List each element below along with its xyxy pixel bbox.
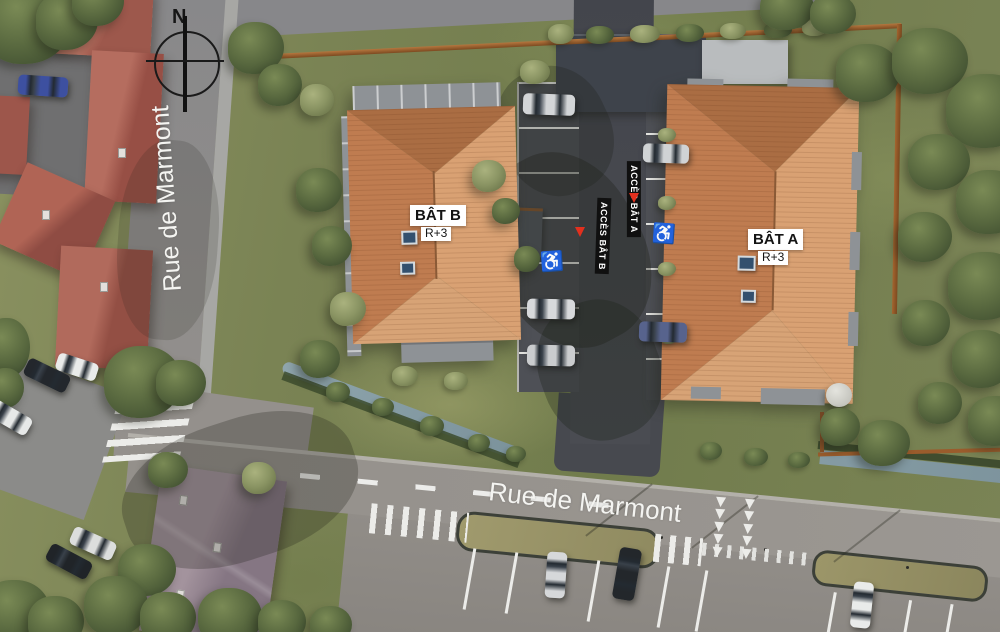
garden-shrub (392, 366, 418, 386)
tree (300, 340, 340, 378)
stream-shrub (788, 452, 810, 468)
lamp-post (906, 566, 909, 569)
tree (948, 252, 1000, 320)
pergola-dome (826, 383, 852, 407)
car (527, 299, 575, 320)
building-a-east-balcony (848, 312, 859, 346)
tree (918, 382, 962, 424)
car (639, 321, 688, 343)
tree (952, 330, 1000, 388)
compass-circle-icon (154, 31, 220, 97)
existing-house (0, 95, 30, 175)
roof-window (741, 290, 756, 303)
garden-shrub (520, 60, 550, 84)
roof-window (400, 262, 415, 275)
compass: N (140, 4, 240, 124)
building-a-east-balcony (849, 232, 860, 270)
tree (820, 408, 860, 446)
shelter-roof (702, 40, 788, 84)
tree (898, 212, 952, 262)
crosswalk-right (653, 534, 704, 567)
building-b-floors: R+3 (421, 227, 451, 241)
compass-needle-icon (183, 16, 187, 112)
car (527, 345, 575, 367)
tree (956, 170, 1000, 234)
handicap-icon: ♿ (651, 221, 676, 247)
handicap-icon: ♿ (539, 249, 564, 275)
compass-crossbar-icon (146, 60, 224, 62)
chimney (100, 282, 108, 292)
tree (28, 596, 84, 632)
access-bat-b-label: ACCÈS BÂT B (595, 198, 612, 275)
hedge-shrub (720, 23, 746, 39)
building-a-floors: R+3 (758, 251, 788, 265)
tree (300, 84, 334, 116)
car (523, 93, 576, 116)
building-b-label: BÂT B (410, 205, 466, 226)
tree (968, 396, 1000, 446)
tree (836, 44, 900, 102)
car (17, 74, 68, 97)
building-a-south-wing (691, 387, 721, 400)
building-a-south-wing (761, 388, 825, 405)
chimney (42, 210, 50, 220)
building-a-label: BÂT A (748, 229, 803, 250)
tree (296, 168, 342, 212)
chimney (118, 148, 126, 158)
car (643, 143, 690, 164)
stream-shrub (506, 446, 526, 462)
tree (84, 576, 148, 632)
tree (902, 300, 950, 346)
building-a-east-balcony (851, 152, 862, 190)
roof-window (401, 230, 417, 244)
access-arrow-icon (575, 227, 585, 237)
tree (258, 64, 302, 106)
garden-shrub (444, 372, 468, 390)
stream-shrub (700, 442, 722, 460)
tree (258, 600, 306, 632)
roof-window (737, 256, 755, 271)
access-arrow-icon (629, 193, 639, 203)
stream-shrub (744, 448, 768, 466)
building-b-south-wing (401, 340, 493, 362)
site-plan: ♿ ♿ ACCÈS BÂT A ACCÈS BÂT B BÂT B R+3 BÂ… (0, 0, 1000, 632)
car (544, 551, 567, 598)
